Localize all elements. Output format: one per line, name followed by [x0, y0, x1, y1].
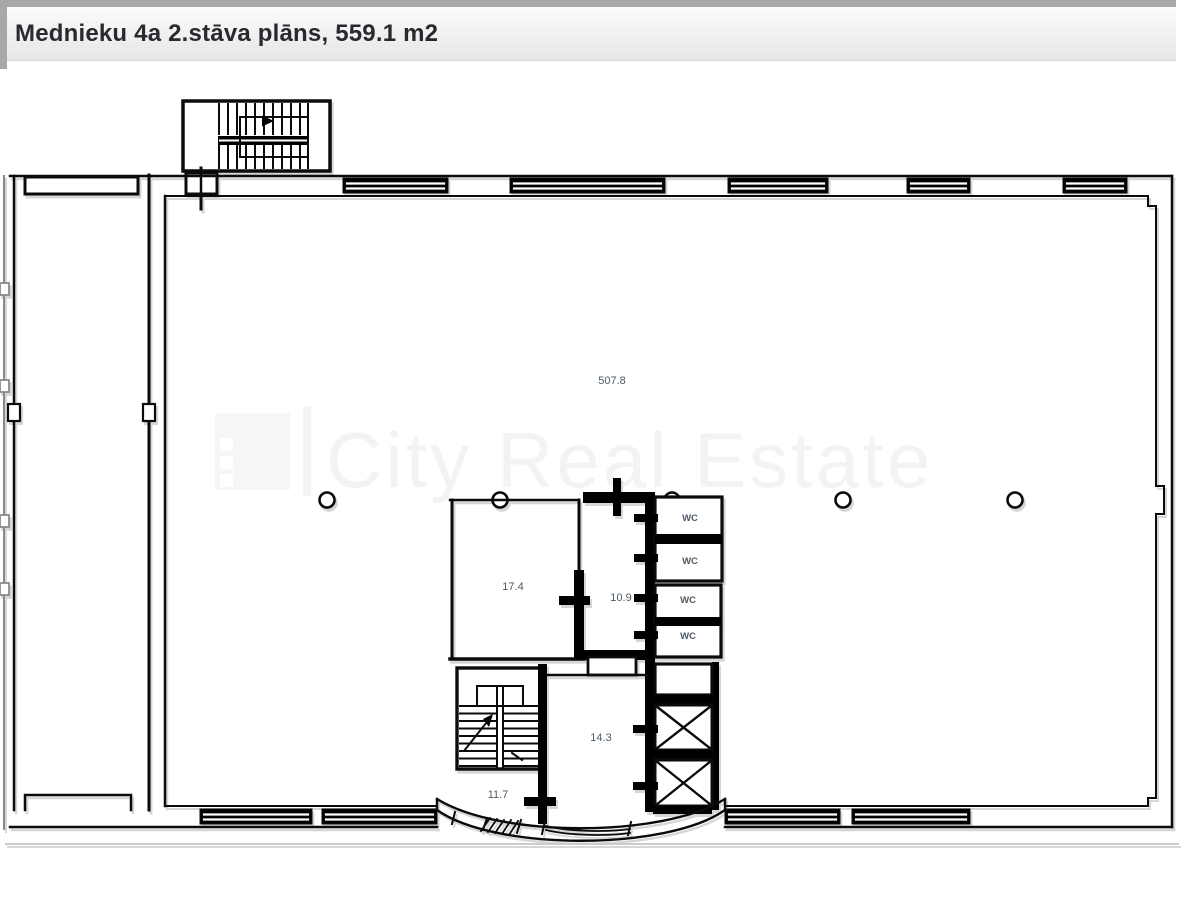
area-label-14-3: 14.3 [590, 732, 611, 744]
area-label-11-7: 11.7 [488, 789, 509, 801]
wc-label-4: WC [680, 631, 696, 642]
watermark-divider [303, 406, 311, 496]
room-14-3-walls [524, 664, 647, 824]
watermark-text: City Real Estate [326, 416, 933, 504]
left-balcony [0, 175, 165, 829]
room-17-4 [450, 500, 590, 660]
area-label-main: 507.8 [598, 375, 626, 387]
floorplan-page: Mednieku 4a 2.stāva plāns, 559.1 m2 City… [0, 0, 1190, 900]
bottom-wall-windows [200, 809, 970, 824]
interior-staircase [457, 668, 540, 769]
area-label-17-4: 17.4 [502, 581, 523, 593]
entry-door-marker [186, 168, 217, 209]
room-10-9 [583, 478, 647, 675]
area-label-10-9: 10.9 [610, 592, 631, 604]
exterior-staircase [183, 101, 330, 171]
wc-block [634, 492, 722, 658]
elevator-shafts [633, 658, 719, 814]
wc-label-3: WC [680, 595, 696, 606]
top-wall-windows [343, 178, 1127, 193]
wc-label-2: WC [682, 556, 698, 567]
floorplan-canvas: City Real Estate [0, 0, 1190, 900]
watermark: City Real Estate [215, 406, 933, 504]
wc-label-1: WC [682, 513, 698, 524]
